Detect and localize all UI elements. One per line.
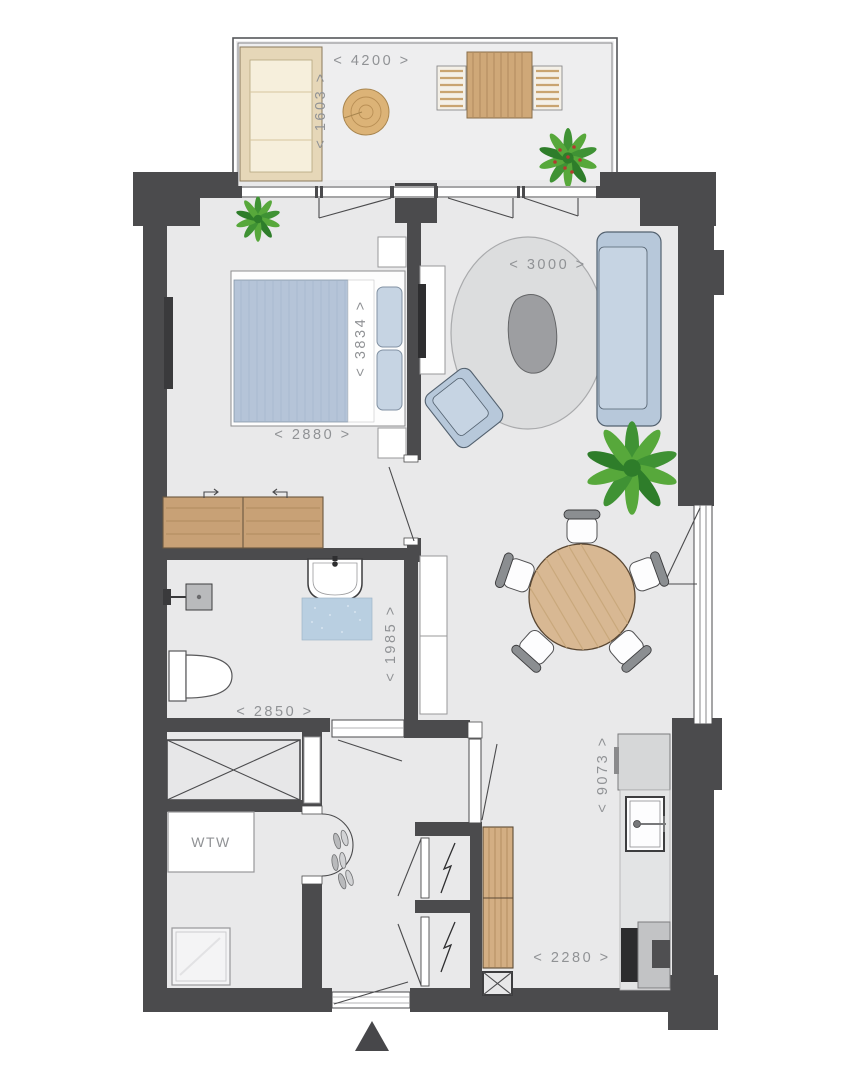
balcony-chair-left	[437, 66, 466, 110]
nightstand-bottom	[378, 428, 406, 458]
dim-living-depth: < 9073 >	[595, 735, 611, 812]
fridge-handle	[614, 747, 619, 774]
dim-bathroom-width: < 2850 >	[236, 704, 313, 720]
bathroom-sink	[308, 556, 362, 601]
dim-balcony-width: < 4200 >	[333, 53, 410, 69]
washing-machine	[172, 928, 230, 985]
floor-plan-page: WTW	[0, 0, 845, 1092]
dining-table	[529, 544, 635, 650]
meter-door-leaf	[421, 917, 429, 986]
meter-door-leaf	[421, 838, 429, 898]
wall-radiator	[164, 297, 173, 389]
kitchen-sink	[626, 797, 666, 851]
wooden-locker	[483, 827, 513, 968]
dim-balcony-depth: < 1603 >	[313, 71, 329, 148]
balcony-stump-table	[343, 89, 389, 135]
sofa	[597, 232, 661, 426]
kitchen	[614, 734, 670, 990]
wtw-unit: WTW	[168, 812, 254, 872]
fridge	[618, 734, 670, 790]
coffee-table	[508, 295, 557, 374]
tv-screen	[418, 284, 426, 358]
stove-oven	[621, 922, 670, 988]
sliding-wardrobe	[163, 489, 323, 548]
wtw-label: WTW	[191, 834, 230, 850]
entrance-arrow-icon	[355, 1021, 389, 1051]
balcony-chair-right	[533, 66, 562, 110]
dim-bedroom-width: < 2880 >	[274, 427, 351, 443]
balcony-dining-table	[467, 52, 532, 118]
bed	[231, 271, 405, 426]
balcony-lounge-chair	[240, 47, 322, 181]
shaft-access-panel	[304, 737, 320, 803]
dim-kitchen-width: < 2280 >	[533, 950, 610, 966]
floor-plan-drawing: WTW	[0, 0, 845, 1092]
dim-bathroom-depth: < 1985 >	[383, 604, 399, 681]
dining-chair	[564, 510, 600, 543]
balcony-glazing	[238, 186, 600, 198]
pillow	[377, 287, 402, 347]
tall-cabinet	[420, 556, 447, 714]
small-shaft-box	[483, 972, 512, 995]
shaft-box	[167, 740, 300, 800]
dim-bedroom-depth: < 3834 >	[353, 299, 369, 376]
bath-mat	[302, 598, 372, 640]
nightstand-top	[378, 237, 406, 267]
pillow	[377, 350, 402, 410]
dim-rug-diameter: < 3000 >	[509, 257, 586, 273]
